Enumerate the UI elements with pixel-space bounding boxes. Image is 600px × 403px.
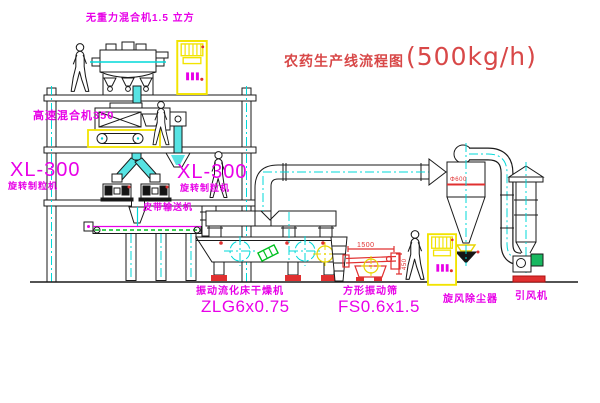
cyclone-diameter-label: Φ600: [450, 177, 467, 183]
diagram-title: 农药生产线流程图 (500kg/h): [284, 42, 537, 71]
fluid-bed-dryer: [196, 211, 340, 281]
label-high-speed-mixer: 高速混合机350: [33, 111, 114, 122]
label-gravity-mixer: 无重力混合机1.5 立方: [86, 14, 195, 24]
dimension-450: 450: [402, 258, 408, 270]
vibrating-sieve: [343, 246, 402, 281]
label-dryer-name: 振动流化床干燥机: [196, 287, 284, 297]
label-granulator-left-model: XL-300: [10, 160, 81, 180]
process-flow-diagram: 农药生产线流程图 (500kg/h) 无重力混合机1.5 立方 高速混合机350…: [0, 0, 600, 403]
label-cyclone: 旋风除尘器: [443, 295, 498, 305]
label-fan: 引风机: [515, 292, 548, 302]
label-granulator-left-name: 旋转制粒机: [8, 182, 58, 191]
induced-draft-fan: [513, 254, 545, 282]
title-capacity: (500kg/h): [406, 42, 537, 71]
dimension-1500: 1500: [357, 242, 375, 249]
belt-conveyor: [84, 222, 201, 281]
granulator-right: [139, 174, 171, 201]
control-cabinet-top: [177, 41, 206, 94]
exhaust-duct: [255, 159, 464, 211]
label-dryer-model: ZLG6x0.75: [201, 298, 290, 315]
person-figure-ground: [406, 231, 424, 280]
granulator-left: [101, 174, 133, 201]
label-granulator-right-name: 旋转制粒机: [180, 184, 230, 193]
title-chinese: 农药生产线流程图: [284, 51, 404, 71]
person-figure-top-floor: [71, 44, 89, 92]
label-belt-conveyor: 皮带输送机: [143, 203, 193, 212]
label-sieve-name: 方形振动筛: [343, 287, 398, 297]
control-cabinet-sieve: [428, 234, 456, 285]
label-sieve-model: FS0.6x1.5: [338, 298, 420, 315]
label-granulator-right-model: XL-300: [177, 162, 248, 182]
